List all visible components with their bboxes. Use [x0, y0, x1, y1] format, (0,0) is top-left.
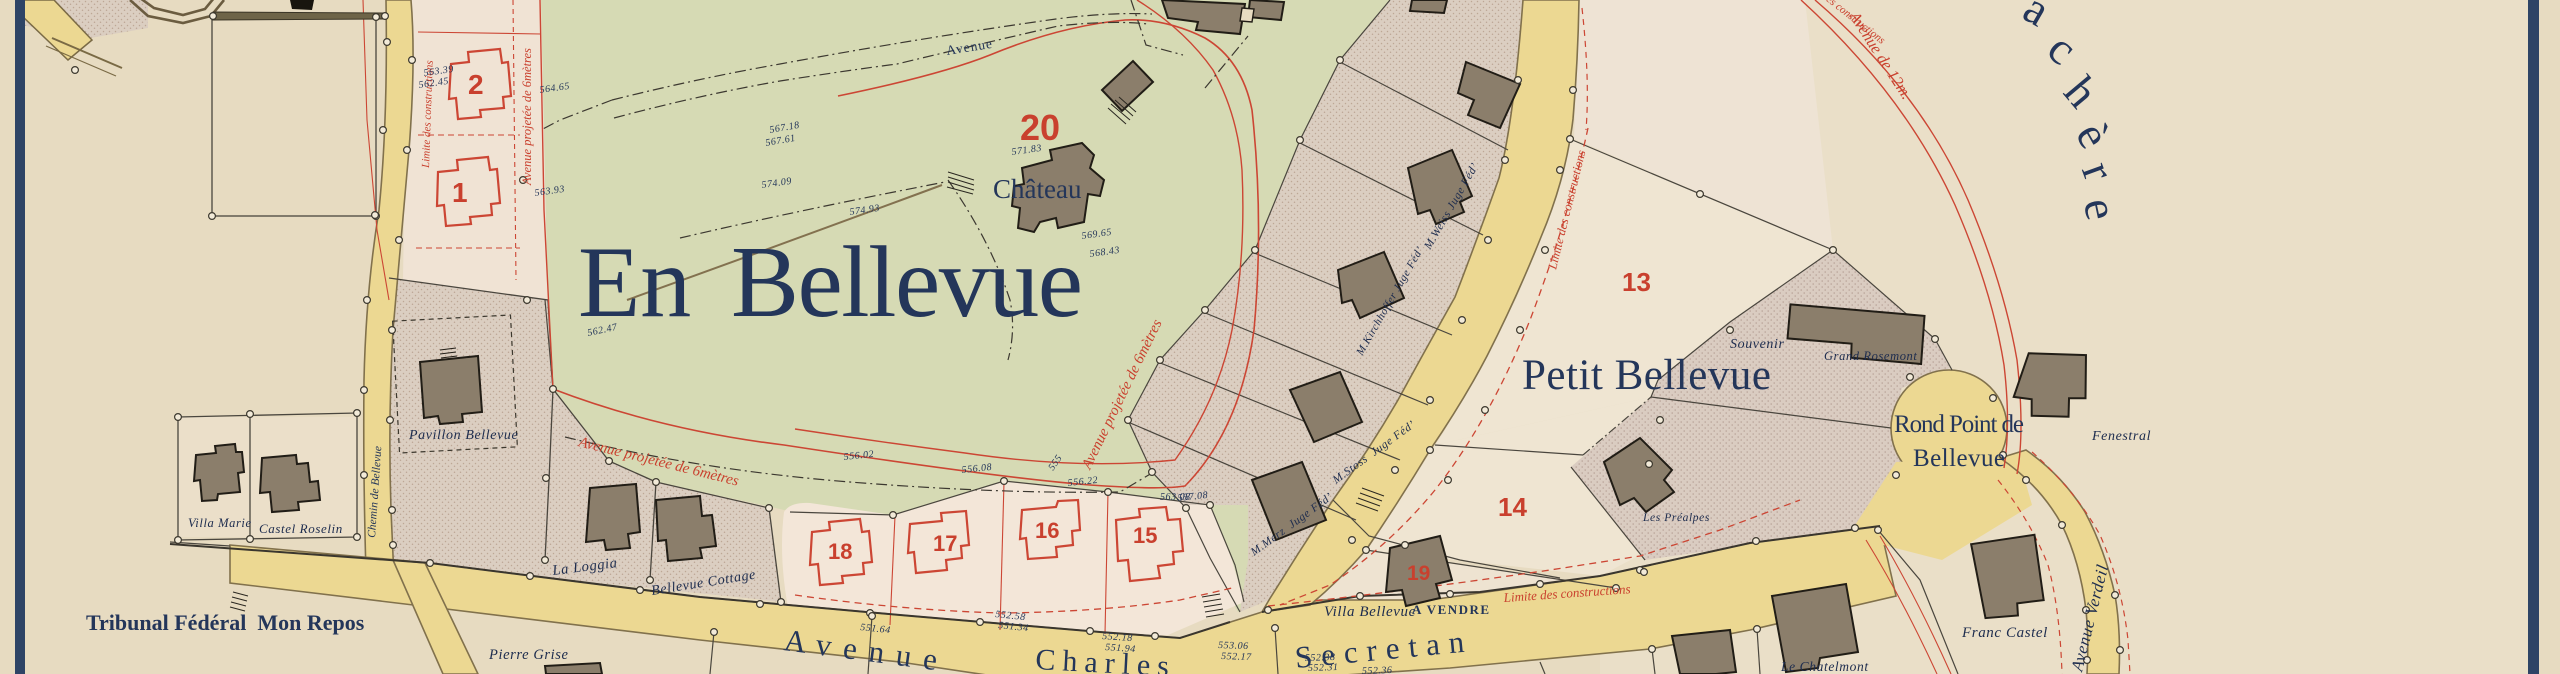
svg-text:Pierre Grise: Pierre Grise: [488, 647, 569, 663]
svg-text:Les Préalpes: Les Préalpes: [1642, 512, 1710, 524]
svg-text:551.94: 551.94: [1105, 642, 1136, 655]
svg-text:552.17: 552.17: [1221, 651, 1252, 663]
svg-text:Rond Point de: Rond Point de: [1894, 411, 2024, 438]
svg-text:Villa Marie: Villa Marie: [188, 516, 252, 530]
svg-text:17: 17: [933, 531, 957, 556]
svg-text:563.08: 563.08: [1160, 492, 1191, 503]
svg-text:Petit Bellevue: Petit Bellevue: [1522, 352, 1771, 399]
svg-text:14: 14: [1498, 492, 1527, 522]
svg-text:20: 20: [1020, 107, 1060, 148]
svg-text:Bellevue: Bellevue: [731, 226, 1083, 339]
svg-text:Tribunal Fédéral Mon Repos: Tribunal Fédéral Mon Repos: [86, 610, 365, 635]
svg-text:1: 1: [452, 177, 468, 208]
svg-text:Souvenir: Souvenir: [1730, 337, 1785, 352]
svg-text:Le Chatelmont: Le Chatelmont: [1780, 659, 1869, 674]
svg-text:Castel Roselin: Castel Roselin: [259, 521, 343, 536]
svg-text:Avenue projetée de 6mètres: Avenue projetée de 6mètres: [520, 48, 534, 186]
svg-text:Fenestral: Fenestral: [2091, 429, 2151, 444]
svg-text:19: 19: [1407, 562, 1430, 585]
svg-text:A VENDRE: A VENDRE: [1412, 602, 1491, 617]
svg-text:16: 16: [1035, 518, 1059, 543]
svg-text:13: 13: [1622, 267, 1651, 297]
svg-text:552.31: 552.31: [1308, 662, 1339, 674]
svg-text:En: En: [578, 226, 691, 339]
svg-text:Bellevue: Bellevue: [1913, 445, 2005, 472]
svg-text:2: 2: [468, 69, 484, 100]
svg-text:Franc Castel: Franc Castel: [1961, 625, 2048, 641]
svg-text:18: 18: [828, 539, 852, 564]
svg-text:552.36: 552.36: [1362, 665, 1393, 674]
svg-text:Villa Bellevue: Villa Bellevue: [1324, 604, 1416, 620]
svg-text:Pavillon Bellevue: Pavillon Bellevue: [408, 428, 518, 443]
svg-text:15: 15: [1133, 523, 1157, 548]
svg-text:Château: Château: [993, 174, 1082, 204]
svg-text:Grand Rosemont: Grand Rosemont: [1824, 349, 1917, 363]
